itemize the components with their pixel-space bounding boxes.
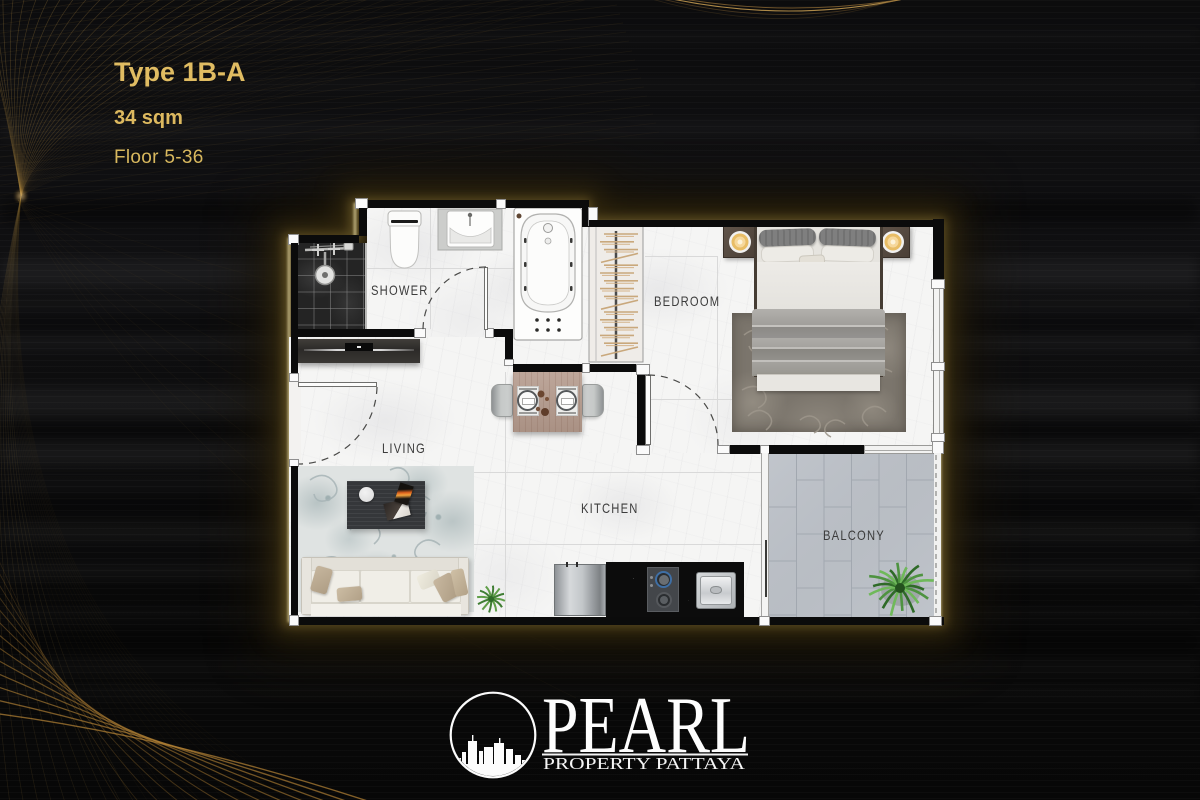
svg-text:PROPERTY PATTAYA: PROPERTY PATTAYA: [543, 754, 746, 773]
